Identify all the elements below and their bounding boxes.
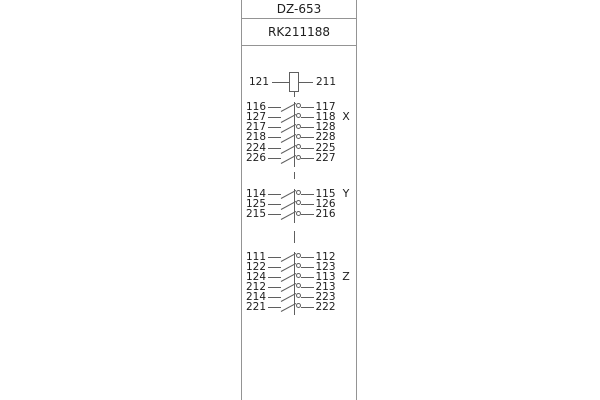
contact-lead-right	[301, 214, 314, 215]
terminal-number-right: 222	[316, 301, 346, 314]
linkage-dash	[294, 231, 295, 243]
contact-lead-right	[301, 137, 314, 138]
contact-point	[296, 103, 301, 108]
coil-lead-left	[272, 82, 289, 83]
contact-lead-right	[301, 257, 314, 258]
contact-lead-right	[301, 127, 314, 128]
contact-point	[296, 263, 301, 268]
contact-point	[296, 155, 301, 160]
contact-lead-left	[268, 194, 281, 195]
contact-diagram: 121211116117127118X217128218228224225226…	[0, 0, 600, 400]
contact-lead-left	[268, 267, 281, 268]
contact-point	[296, 293, 301, 298]
contact-lead-right	[301, 107, 314, 108]
terminal-number-left: 215	[236, 208, 266, 221]
contact-point	[296, 144, 301, 149]
coil-terminal-right: 211	[316, 76, 346, 89]
contact-lead-left	[268, 158, 281, 159]
terminal-number-left: 221	[236, 301, 266, 314]
contact-lead-left	[268, 137, 281, 138]
contact-lead-left	[268, 297, 281, 298]
contact-lead-right	[301, 148, 314, 149]
contact-lead-right	[301, 194, 314, 195]
coil-symbol	[289, 72, 299, 92]
contact-point	[296, 190, 301, 195]
contact-point	[296, 134, 301, 139]
contact-lead-right	[301, 117, 314, 118]
contact-lead-left	[268, 287, 281, 288]
terminal-number-right: 216	[316, 208, 346, 221]
terminal-number-right: 227	[316, 152, 346, 165]
contact-point	[296, 273, 301, 278]
contact-lead-right	[301, 158, 314, 159]
relay-schematic: DZ-653 RK211188 121211116117127118X21712…	[0, 0, 600, 400]
contact-lead-right	[301, 267, 314, 268]
group-Y-linkage-line	[294, 189, 295, 223]
contact-point	[296, 283, 301, 288]
contact-lead-left	[268, 117, 281, 118]
contact-point	[296, 253, 301, 258]
contact-lead-left	[268, 127, 281, 128]
terminal-number-left: 226	[236, 152, 266, 165]
contact-point	[296, 113, 301, 118]
contact-lead-left	[268, 277, 281, 278]
contact-lead-left	[268, 257, 281, 258]
coil-terminal-left: 121	[239, 76, 269, 89]
contact-point	[296, 124, 301, 129]
contact-lead-right	[301, 287, 314, 288]
contact-lead-left	[268, 307, 281, 308]
contact-point	[296, 303, 301, 308]
contact-lead-right	[301, 307, 314, 308]
coil-lead-right	[299, 82, 313, 83]
contact-lead-right	[301, 297, 314, 298]
contact-point	[296, 200, 301, 205]
linkage-dash	[294, 172, 295, 180]
contact-lead-left	[268, 148, 281, 149]
coil-armature-tick	[294, 92, 295, 97]
contact-lead-right	[301, 277, 314, 278]
contact-lead-left	[268, 214, 281, 215]
contact-lead-left	[268, 204, 281, 205]
contact-lead-left	[268, 107, 281, 108]
contact-point	[296, 211, 301, 216]
contact-lead-right	[301, 204, 314, 205]
